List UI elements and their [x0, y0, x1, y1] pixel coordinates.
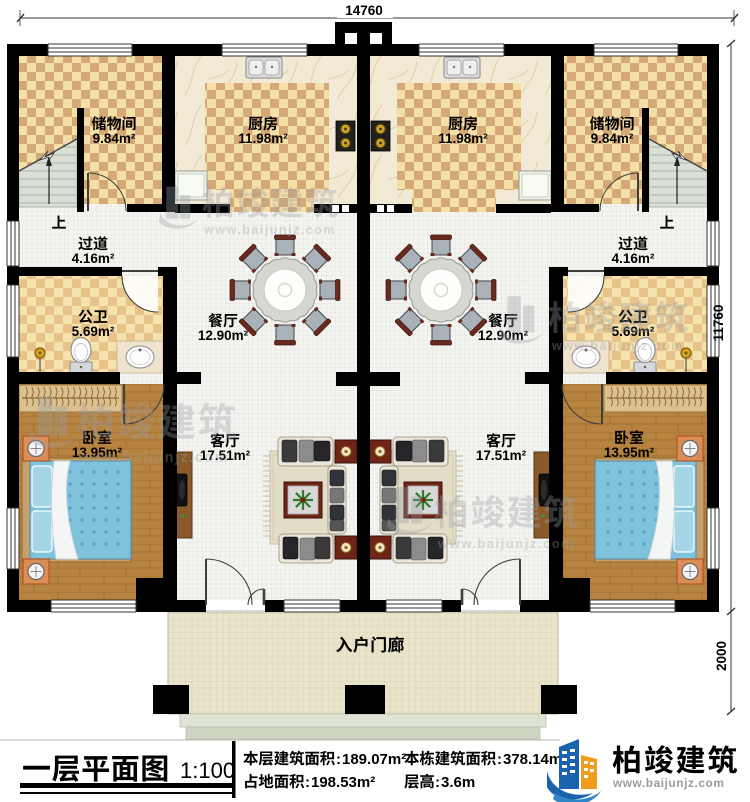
- svg-text:9.84m²: 9.84m²: [93, 131, 136, 146]
- svg-text:3.6m: 3.6m: [441, 774, 475, 791]
- svg-text::: :: [435, 774, 440, 791]
- svg-text:www.baijunjz.com: www.baijunjz.com: [203, 223, 336, 237]
- svg-text:2000: 2000: [714, 641, 729, 671]
- svg-text:11.98m²: 11.98m²: [438, 131, 488, 146]
- svg-text:5.69m²: 5.69m²: [72, 324, 115, 339]
- svg-text:www.baijunjz.com: www.baijunjz.com: [437, 536, 574, 551]
- svg-text:11760: 11760: [711, 305, 726, 342]
- svg-text:4.16m²: 4.16m²: [72, 251, 115, 266]
- svg-text:12.90m²: 12.90m²: [198, 328, 249, 343]
- svg-text:4.16m²: 4.16m²: [612, 251, 655, 266]
- svg-text:17.51m²: 17.51m²: [476, 448, 527, 463]
- svg-text::: :: [305, 774, 310, 791]
- svg-text::: :: [497, 751, 502, 768]
- svg-text:1:100: 1:100: [180, 758, 235, 783]
- svg-text:www.baijunjz.com: www.baijunjz.com: [79, 450, 229, 466]
- svg-text:189.07m²: 189.07m²: [342, 751, 406, 768]
- svg-text:9.84m²: 9.84m²: [591, 131, 634, 146]
- svg-text:378.14m²: 378.14m²: [503, 751, 567, 768]
- svg-text::: :: [336, 751, 341, 768]
- svg-text:14760: 14760: [345, 3, 383, 18]
- svg-text:www.baijunjz.com: www.baijunjz.com: [551, 339, 684, 353]
- svg-text:198.53m²: 198.53m²: [311, 774, 375, 791]
- svg-text:11.98m²: 11.98m²: [238, 131, 288, 146]
- svg-text:13.95m²: 13.95m²: [604, 445, 655, 460]
- svg-text:www.baijunjz.com: www.baijunjz.com: [612, 776, 724, 790]
